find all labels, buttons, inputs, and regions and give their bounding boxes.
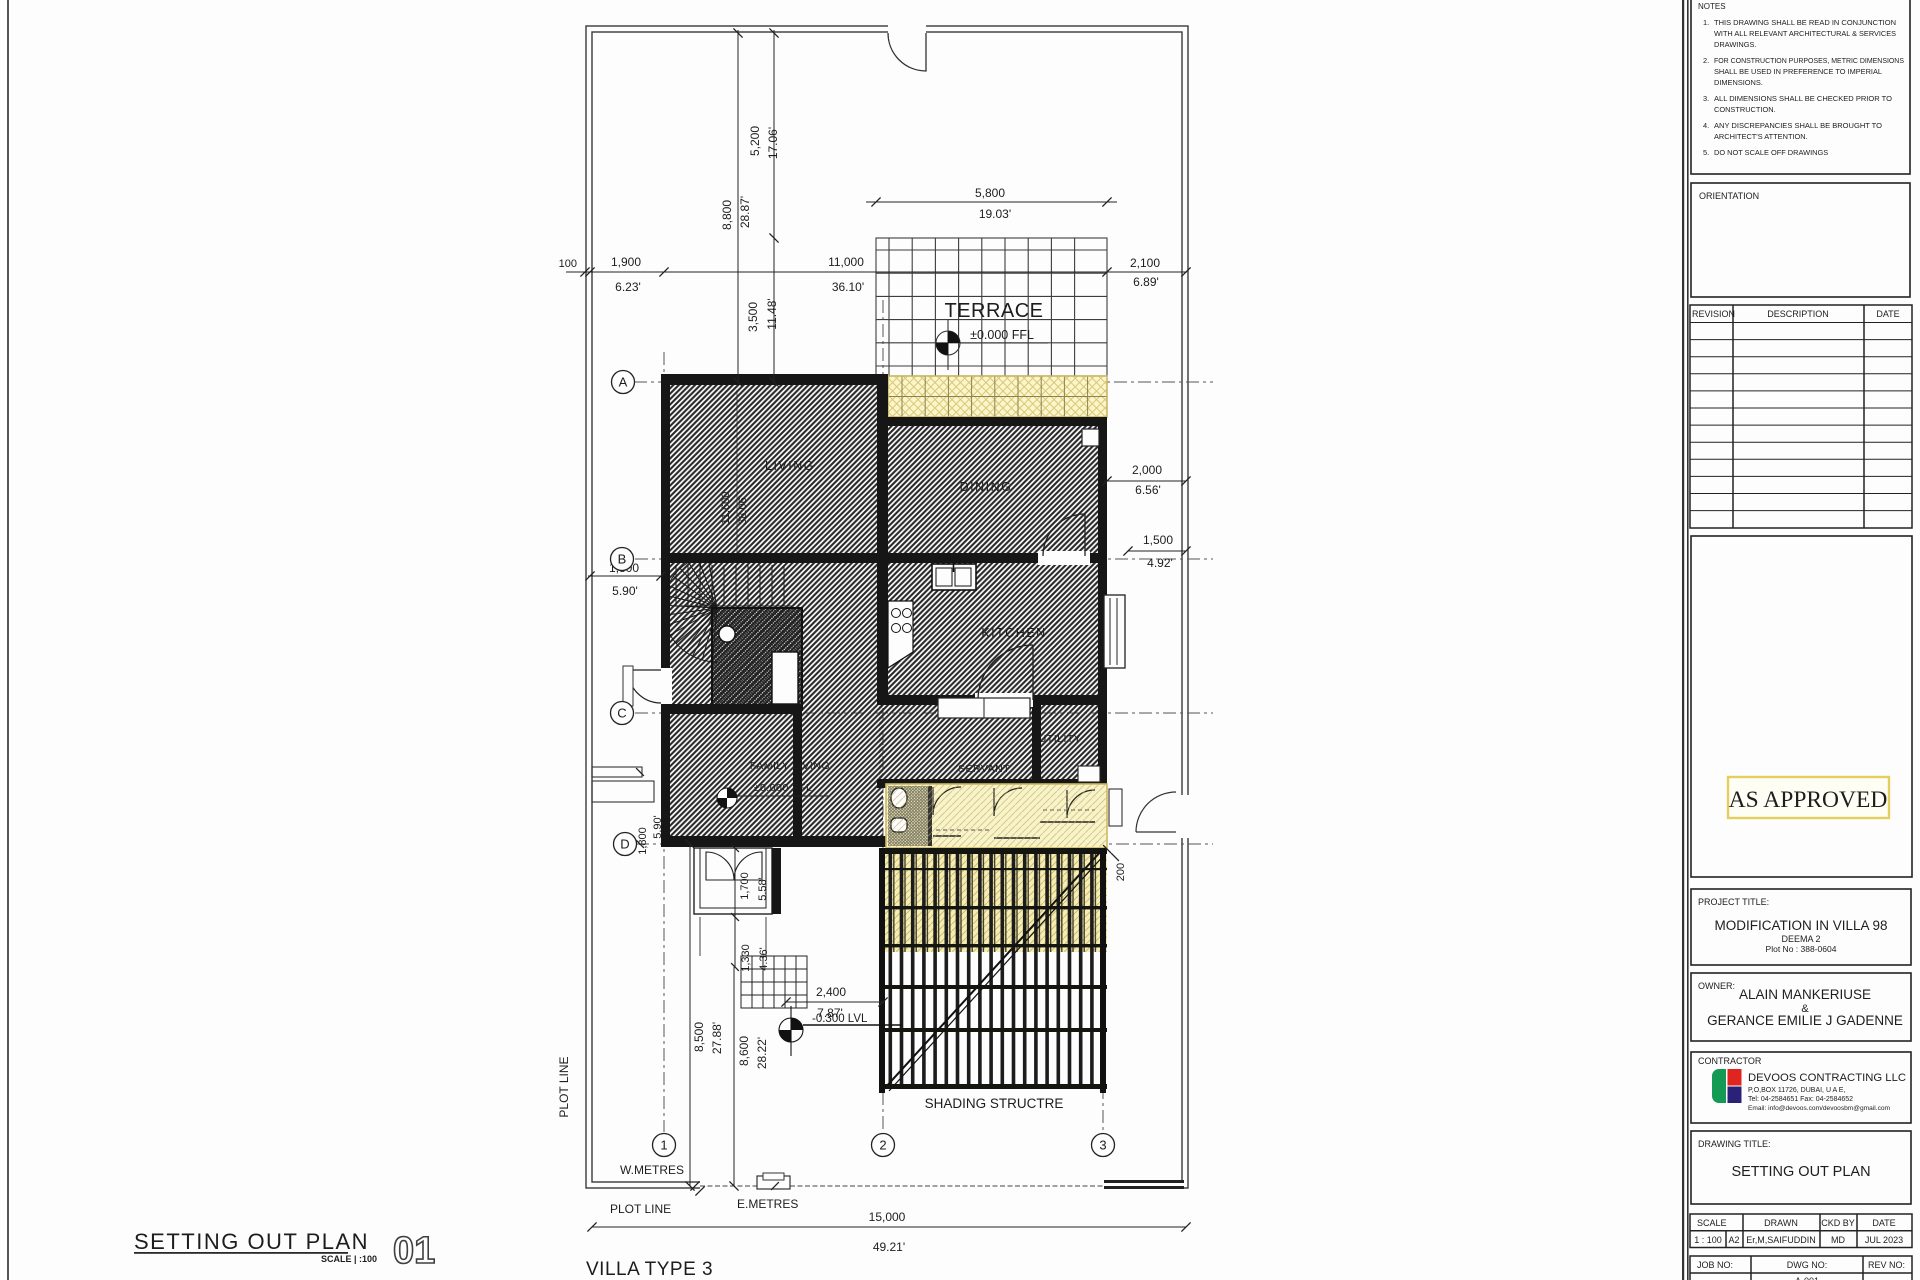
svg-text:SHALL BE USED IN PREFERENCE TO: SHALL BE USED IN PREFERENCE TO IMPERIAL xyxy=(1714,67,1882,76)
svg-text:PROJECT TITLE:: PROJECT TITLE: xyxy=(1698,897,1769,907)
svg-text:11,600: 11,600 xyxy=(720,492,732,525)
svg-text:KITCHEN: KITCHEN xyxy=(981,626,1046,640)
svg-text:A-001: A-001 xyxy=(1795,1276,1819,1280)
svg-text:A: A xyxy=(619,375,628,390)
svg-text:DRAWN: DRAWN xyxy=(1764,1218,1798,1228)
svg-text:UTILITY: UTILITY xyxy=(1039,733,1082,745)
svg-text:MD: MD xyxy=(1831,1235,1845,1245)
svg-text:Plot No : 388-0604: Plot No : 388-0604 xyxy=(1766,944,1837,954)
svg-text:Er,M,SAIFUDDIN: Er,M,SAIFUDDIN xyxy=(1746,1235,1816,1245)
svg-text:2: 2 xyxy=(879,1138,886,1153)
svg-text:E.METRES: E.METRES xyxy=(737,1197,798,1211)
svg-text:2,400: 2,400 xyxy=(816,985,846,999)
svg-text:28.87': 28.87' xyxy=(738,196,752,228)
svg-text:6.89': 6.89' xyxy=(1133,275,1159,289)
svg-text:36.10': 36.10' xyxy=(832,280,864,294)
svg-text:DIMENSIONS.: DIMENSIONS. xyxy=(1714,78,1763,87)
svg-text:A2: A2 xyxy=(1728,1235,1739,1245)
svg-text:2,100: 2,100 xyxy=(1130,256,1160,270)
svg-text:1,800: 1,800 xyxy=(637,827,649,855)
svg-text:6.23': 6.23' xyxy=(615,280,641,294)
svg-text:3: 3 xyxy=(1099,1138,1106,1153)
svg-text:JOB NO:: JOB NO: xyxy=(1697,1260,1733,1270)
svg-text:5,200: 5,200 xyxy=(748,126,762,156)
svg-text:REV NO:: REV NO: xyxy=(1868,1260,1905,1270)
svg-text:27.88': 27.88' xyxy=(710,1022,724,1054)
svg-text:19.03': 19.03' xyxy=(979,207,1011,221)
svg-text:100: 100 xyxy=(559,258,577,270)
svg-text:1,500: 1,500 xyxy=(1143,533,1173,547)
svg-text:1,900: 1,900 xyxy=(611,255,641,269)
svg-text:ORIENTATION: ORIENTATION xyxy=(1699,191,1759,201)
svg-text:WITH ALL RELEVANT ARCHITECTURA: WITH ALL RELEVANT ARCHITECTURAL & SERVIC… xyxy=(1714,29,1896,38)
svg-text:PLOT LINE: PLOT LINE xyxy=(610,1202,671,1216)
svg-text:2.: 2. xyxy=(1703,56,1709,65)
svg-text:5.90': 5.90' xyxy=(652,815,664,839)
svg-text:P,O,BOX 11726, DUBAI, U A E,: P,O,BOX 11726, DUBAI, U A E, xyxy=(1748,1087,1845,1094)
svg-text:DEVOOS CONTRACTING LLC: DEVOOS CONTRACTING LLC xyxy=(1748,1072,1906,1084)
svg-text:±0.000 FFL: ±0.000 FFL xyxy=(970,328,1034,342)
svg-text:CKD BY: CKD BY xyxy=(1821,1218,1855,1228)
svg-text:FOR CONSTRUCTION PURPOSES, MET: FOR CONSTRUCTION PURPOSES, METRIC DIMENS… xyxy=(1714,56,1904,65)
svg-text:4.92': 4.92' xyxy=(1147,556,1173,570)
svg-text:1,330: 1,330 xyxy=(740,944,752,972)
svg-text:200: 200 xyxy=(1115,863,1127,881)
svg-text:SETTING OUT PLAN: SETTING OUT PLAN xyxy=(134,1229,369,1254)
svg-text:4.36': 4.36' xyxy=(758,947,770,971)
svg-text:ARCHITECT'S ATTENTION.: ARCHITECT'S ATTENTION. xyxy=(1714,132,1808,141)
svg-text:Tel: 04-2584651 Fax: 04-25846: Tel: 04-2584651 Fax: 04-2584652 xyxy=(1748,1096,1853,1103)
svg-text:38.06': 38.06' xyxy=(737,495,749,525)
svg-text:±0.000 FFL: ±0.000 FFL xyxy=(754,782,813,794)
svg-text:ANY DISCREPANCIES SHALL BE BRO: ANY DISCREPANCIES SHALL BE BROUGHT TO xyxy=(1714,121,1882,130)
svg-text:ALAIN MANKERIUSE: ALAIN MANKERIUSE xyxy=(1739,987,1871,1002)
svg-text:C: C xyxy=(617,706,626,721)
svg-text:3.: 3. xyxy=(1703,94,1709,103)
svg-text:SCALE | :100: SCALE | :100 xyxy=(321,1254,377,1264)
svg-text:CONSTRUCTION.: CONSTRUCTION. xyxy=(1714,105,1776,114)
svg-text:DESCRIPTION: DESCRIPTION xyxy=(1767,309,1829,319)
svg-text:DWG NO:: DWG NO: xyxy=(1787,1260,1828,1270)
svg-text:SCALE: SCALE xyxy=(1697,1218,1727,1228)
svg-text:5,800: 5,800 xyxy=(975,186,1005,200)
svg-text:4.: 4. xyxy=(1703,121,1709,130)
svg-text:DATE: DATE xyxy=(1872,1218,1895,1228)
svg-text:LIVING: LIVING xyxy=(765,459,815,473)
svg-text:SHADING STRUCTRE: SHADING STRUCTRE xyxy=(925,1096,1064,1111)
svg-text:DRAWING TITLE:: DRAWING TITLE: xyxy=(1698,1139,1771,1149)
svg-text:3,500: 3,500 xyxy=(746,302,760,332)
svg-text:D: D xyxy=(620,837,629,852)
svg-text:B: B xyxy=(618,552,627,567)
svg-text:DRAWINGS.: DRAWINGS. xyxy=(1714,40,1756,49)
svg-text:1: 1 xyxy=(660,1138,667,1153)
svg-text:TERRACE: TERRACE xyxy=(944,300,1043,322)
svg-text:PLOT LINE: PLOT LINE xyxy=(557,1056,571,1117)
svg-text:1 : 100: 1 : 100 xyxy=(1694,1235,1722,1245)
svg-text:REVISION: REVISION xyxy=(1692,309,1735,319)
svg-text:DEEMA 2: DEEMA 2 xyxy=(1781,934,1820,944)
svg-text:5.90': 5.90' xyxy=(612,584,638,598)
svg-text:5.: 5. xyxy=(1703,148,1709,157)
svg-text:OWNER:: OWNER: xyxy=(1698,981,1735,991)
svg-text:MODIFICATION IN VILLA 98: MODIFICATION IN VILLA 98 xyxy=(1714,918,1887,933)
svg-text:GERANCE EMILIE J GADENNE: GERANCE EMILIE J GADENNE xyxy=(1707,1013,1903,1028)
svg-text:DATE: DATE xyxy=(1876,309,1899,319)
svg-text:DO NOT SCALE OFF DRAWINGS: DO NOT SCALE OFF DRAWINGS xyxy=(1714,148,1828,157)
svg-text:JUL 2023: JUL 2023 xyxy=(1865,1235,1903,1245)
svg-text:DINING: DINING xyxy=(960,480,1013,494)
svg-text:CONTRACTOR: CONTRACTOR xyxy=(1698,1056,1762,1066)
svg-text:THIS DRAWING SHALL BE READ IN: THIS DRAWING SHALL BE READ IN CONJUNCTIO… xyxy=(1714,18,1896,27)
svg-text:SETTING OUT PLAN: SETTING OUT PLAN xyxy=(1731,1164,1870,1180)
svg-text:FAMILY LIVING: FAMILY LIVING xyxy=(750,760,830,772)
svg-text:VILLA TYPE 3: VILLA TYPE 3 xyxy=(586,1259,713,1280)
svg-text:15,000: 15,000 xyxy=(869,1210,906,1224)
svg-text:6.56': 6.56' xyxy=(1135,483,1161,497)
svg-text:49.21': 49.21' xyxy=(873,1240,905,1254)
svg-text:11.48': 11.48' xyxy=(765,298,779,329)
svg-text:7.87': 7.87' xyxy=(817,1006,843,1020)
svg-text:1.: 1. xyxy=(1703,18,1709,27)
svg-text:8,800: 8,800 xyxy=(720,200,734,230)
svg-text:AS APPROVED: AS APPROVED xyxy=(1729,787,1888,813)
svg-text:SERVANT: SERVANT xyxy=(958,763,1010,775)
svg-text:NOTES: NOTES xyxy=(1698,2,1726,11)
svg-text:8,500: 8,500 xyxy=(692,1022,706,1052)
svg-text:ALL DIMENSIONS SHALL BE CHECKE: ALL DIMENSIONS SHALL BE CHECKED PRIOR TO xyxy=(1714,94,1892,103)
svg-text:01: 01 xyxy=(393,1230,435,1272)
svg-text:1,700: 1,700 xyxy=(739,872,751,900)
svg-text:17.06': 17.06' xyxy=(766,127,780,159)
svg-text:11,000: 11,000 xyxy=(828,255,864,269)
svg-text:2,000: 2,000 xyxy=(1132,463,1162,477)
svg-text:Email: info@devoos.com/devoosb: Email: info@devoos.com/devoosbm@gmail.co… xyxy=(1748,1105,1891,1112)
svg-text:W.METRES: W.METRES xyxy=(620,1163,684,1177)
svg-text:5.58': 5.58' xyxy=(757,877,769,901)
svg-text:28.22': 28.22' xyxy=(755,1037,769,1069)
svg-text:8,600: 8,600 xyxy=(737,1036,751,1066)
